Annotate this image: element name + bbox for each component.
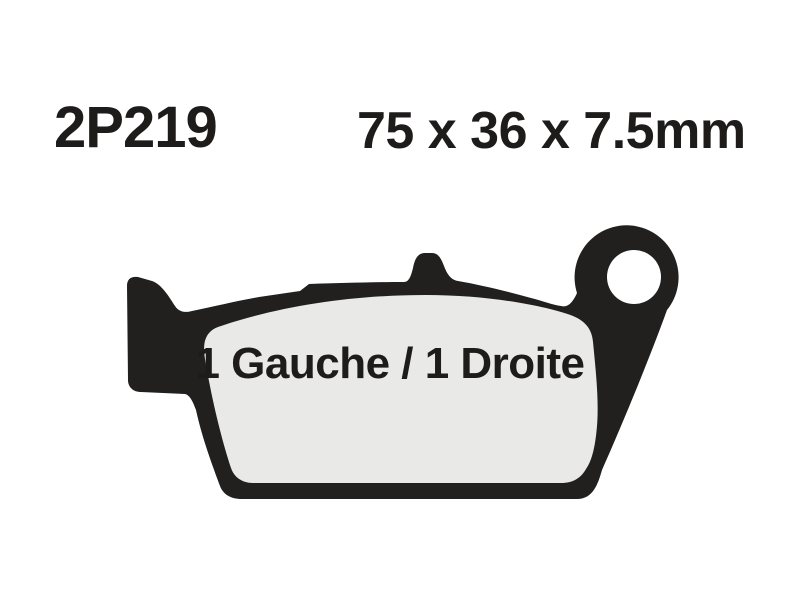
- product-illustration: 2P219 75 x 36 x 7.5mm 1 Gauche / 1 Droit…: [0, 0, 800, 600]
- pad-orientation-label: 1 Gauche / 1 Droite: [195, 339, 584, 388]
- brake-pad-diagram-icon: 1 Gauche / 1 Droite: [0, 0, 800, 600]
- friction-pad-shape: [204, 295, 598, 483]
